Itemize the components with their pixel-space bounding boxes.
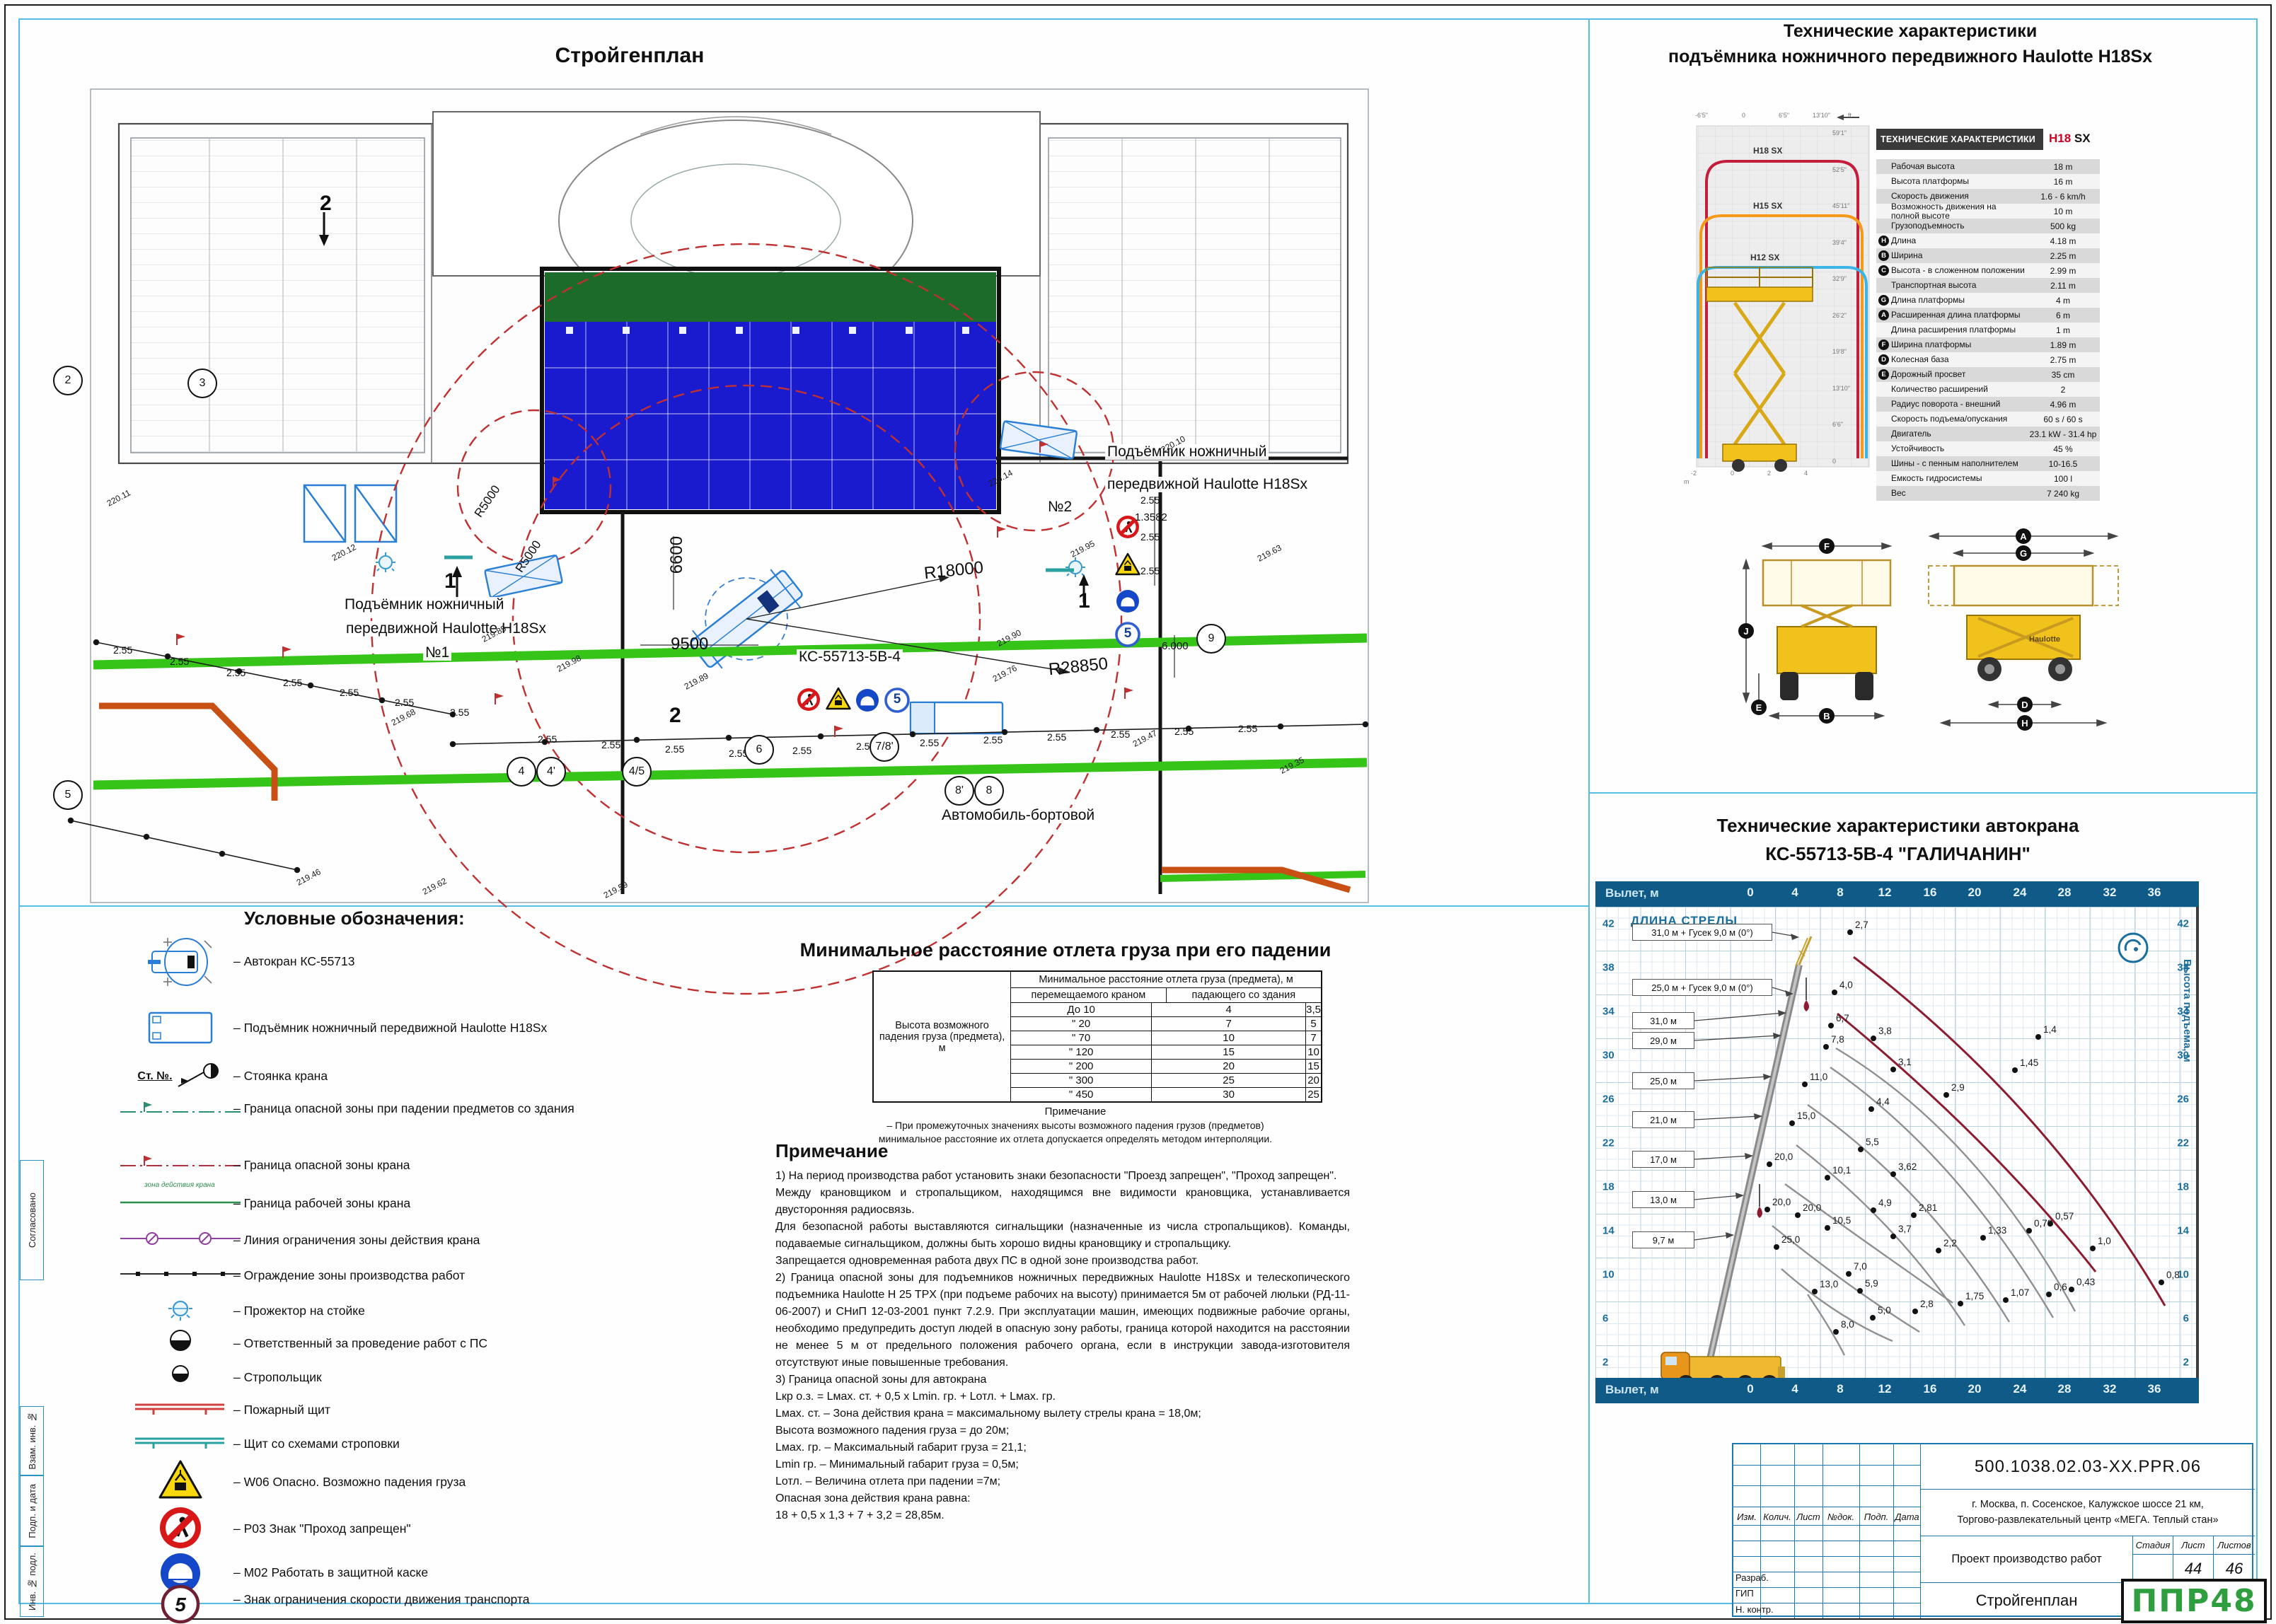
zone-limit-line-icon bbox=[120, 1229, 241, 1248]
x-tick: 12 bbox=[1878, 1382, 1892, 1396]
envelope-model-h15: H15 SX bbox=[1753, 201, 1782, 211]
y-tick-left: 18 bbox=[1602, 1181, 1614, 1193]
x-tick: 28 bbox=[2058, 1382, 2072, 1396]
spec-row: HДлина4.18 m bbox=[1876, 233, 2100, 248]
load-value: 1,0 bbox=[2098, 1236, 2111, 1246]
spec-row: Транспортная высота2.11 m bbox=[1876, 278, 2100, 293]
crane-parking-icon: Ст. №. bbox=[120, 1062, 241, 1091]
load-value: 2,8 bbox=[1920, 1299, 1934, 1309]
y-tick-right: 42 bbox=[2177, 918, 2189, 930]
h18sx-title-line1: Технические характеристики bbox=[1592, 21, 2229, 42]
chart-top-axis-bar: Вылет, м 04812162024283236 bbox=[1595, 881, 2199, 907]
load-value: 6,7 bbox=[1836, 1013, 1849, 1023]
title-block: Изм. Колич. Лист №док. Подп. Дата Разраб… bbox=[1732, 1443, 2253, 1617]
note-paragraph: 2) Граница опасной зоны для подъемников … bbox=[775, 1270, 1350, 1371]
load-value: 5,9 bbox=[1865, 1278, 1878, 1289]
rev-h-data: Дата bbox=[1893, 1508, 1921, 1525]
safety-signs bbox=[797, 516, 1140, 712]
load-value: 2,7 bbox=[1855, 920, 1868, 930]
dimension-diagrams bbox=[1743, 533, 2118, 726]
building-danger-boundary-icon bbox=[120, 1098, 241, 1119]
load-value: 25,0 bbox=[1781, 1234, 1800, 1245]
load-value: 3,1 bbox=[1898, 1057, 1912, 1067]
drawing-name: Стройгенплан bbox=[1921, 1583, 2133, 1618]
crane-work-boundary-icon: зона действия крана bbox=[120, 1191, 241, 1210]
sheets-header: Листов bbox=[2214, 1536, 2255, 1555]
object-address: г. Москва, п. Сосенское, Калужское шоссе… bbox=[1921, 1490, 2255, 1536]
boom-length-label: 21,0 м bbox=[1632, 1111, 1694, 1128]
spec-row: Высота платформы16 m bbox=[1876, 174, 2100, 189]
fire-shield-icon bbox=[120, 1399, 241, 1417]
spec-row: Количество расширений2 bbox=[1876, 382, 2100, 397]
note-paragraph: 3) Граница опасной зоны для автокрана bbox=[775, 1371, 1350, 1388]
load-value: 20,0 bbox=[1772, 1197, 1791, 1207]
work-zone-fence-icon bbox=[120, 1266, 241, 1282]
chart-graphics bbox=[1595, 881, 2199, 1403]
work-supervisor-icon bbox=[120, 1330, 241, 1351]
x-tick: 36 bbox=[2148, 886, 2161, 900]
drawing-sheet: Согласовано Взам. инв. № Подп. и дата Ин… bbox=[0, 0, 2276, 1624]
envelope-right-tick: 52'5" bbox=[1832, 166, 1847, 173]
svg-text:5: 5 bbox=[175, 1594, 186, 1616]
y-tick-left: 14 bbox=[1602, 1225, 1614, 1237]
doc-number: 500.1038.02.03-XX.PPR.06 bbox=[1921, 1444, 2255, 1490]
fall-table-row: До 1043,5 bbox=[1011, 1003, 1321, 1017]
spec-row: Скорость подъема/опускания60 s / 60 s bbox=[1876, 412, 2100, 427]
x-tick: 16 bbox=[1924, 1382, 1937, 1396]
crane-danger-boundary-icon bbox=[120, 1152, 241, 1173]
load-value: 4,9 bbox=[1878, 1197, 1892, 1208]
note-paragraph: Между крановщиком и стропальщиком, наход… bbox=[775, 1185, 1350, 1219]
envelope-right-tick: 45'11" bbox=[1832, 202, 1849, 209]
y-tick-left: 2 bbox=[1602, 1357, 1608, 1369]
fall-table-row: " 4503025 bbox=[1011, 1088, 1321, 1101]
floodlight-icon bbox=[120, 1296, 241, 1324]
load-value: 1,75 bbox=[1965, 1291, 1984, 1301]
note-paragraph: 1) На период производства работ установи… bbox=[775, 1168, 1350, 1185]
load-value: 5,5 bbox=[1866, 1137, 1879, 1147]
galichanin-logo-icon bbox=[2119, 934, 2147, 962]
y-tick-right: 22 bbox=[2177, 1137, 2189, 1149]
ppr48-logo: ППР48 bbox=[2133, 1583, 2255, 1618]
chart-bottom-axis-bar: Вылет, м 04812162024283236 bbox=[1595, 1378, 2199, 1403]
crane-load-chart: Вылет, м 04812162024283236 Вылет, м 0481… bbox=[1595, 881, 2199, 1403]
x-tick: 16 bbox=[1924, 886, 1937, 900]
load-value: 2,9 bbox=[1951, 1082, 1965, 1093]
y-tick-left: 26 bbox=[1602, 1094, 1614, 1106]
rev-h-kolich: Колич. bbox=[1760, 1508, 1794, 1525]
flatbed-truck-symbol bbox=[911, 702, 1003, 733]
boom-length-label: 31,0 м + Гусек 9,0 м (0°) bbox=[1632, 924, 1772, 941]
envelope-right-tick: 13'10" bbox=[1832, 385, 1850, 392]
y-tick-right: 18 bbox=[2177, 1181, 2189, 1193]
spec-row: Грузоподъемность500 kg bbox=[1876, 219, 2100, 233]
note-paragraph: 18 + 0,5 х 1,3 + 7 + 3,2 = 28,85м. bbox=[775, 1507, 1350, 1524]
project-name: Проект производство работ bbox=[1921, 1536, 2133, 1583]
fall-sub2: падающего со здания bbox=[1167, 988, 1321, 1002]
spec-row: DКолесная база2.75 m bbox=[1876, 352, 2100, 367]
dim-letter-A: A bbox=[2016, 528, 2031, 544]
height-axis-label: Высота подъема, м bbox=[2181, 959, 2193, 1062]
envelope-right-tick: 32'9" bbox=[1832, 275, 1847, 282]
y-tick-left: 42 bbox=[1602, 918, 1614, 930]
y-tick-right: 26 bbox=[2177, 1094, 2189, 1106]
speed-limit-sign-icon: 5 bbox=[120, 1584, 241, 1624]
x-tick: 24 bbox=[2014, 1382, 2027, 1396]
rev-h-izm: Изм. bbox=[1733, 1508, 1760, 1525]
crane-title-line2: КС-55713-5В-4 "ГАЛИЧАНИН" bbox=[1595, 843, 2200, 865]
spec-row: GДлина платформы4 m bbox=[1876, 293, 2100, 308]
load-value: 4,0 bbox=[1839, 980, 1853, 990]
load-value: 13,0 bbox=[1820, 1279, 1838, 1289]
load-value: 11,0 bbox=[1810, 1072, 1827, 1082]
spec-row: Емкость гидросистемы100 l bbox=[1876, 471, 2100, 486]
note-paragraph: Высота возможного падения груза = до 20м… bbox=[775, 1422, 1350, 1439]
y-tick-left: 38 bbox=[1602, 962, 1614, 974]
x-tick: 24 bbox=[2014, 886, 2027, 900]
dim-letter-J: J bbox=[1738, 623, 1754, 639]
roads bbox=[93, 638, 1367, 890]
crane-plan-icon bbox=[120, 935, 241, 989]
rev-h-list: Лист bbox=[1794, 1508, 1822, 1525]
spec-row: BШирина2.25 m bbox=[1876, 248, 2100, 263]
load-value: 0,43 bbox=[2076, 1277, 2095, 1287]
fall-span-header: Минимальное расстояние отлета груза (пре… bbox=[1011, 972, 1321, 988]
envelope-model-h18: H18 SX bbox=[1753, 146, 1782, 156]
fall-table-row: " 1201510 bbox=[1011, 1045, 1321, 1060]
x-tick: 36 bbox=[2148, 1382, 2161, 1396]
load-value: 1,07 bbox=[2011, 1287, 2029, 1298]
dim-letter-H: H bbox=[2017, 715, 2033, 731]
fall-table-row: " 2075 bbox=[1011, 1017, 1321, 1031]
y-tick-left: 34 bbox=[1602, 1006, 1614, 1018]
spec-row: AРасширенная длина платформы6 m bbox=[1876, 308, 2100, 323]
x-tick: 4 bbox=[1791, 1382, 1798, 1396]
load-value: 8,0 bbox=[1841, 1319, 1854, 1330]
spec-model-label: H18 SX bbox=[2049, 132, 2091, 146]
envelope-unit-ft: ft bbox=[1848, 112, 1852, 119]
spec-row: EДорожный просвет35 cm bbox=[1876, 367, 2100, 382]
boom-length-label: 29,0 м bbox=[1632, 1032, 1694, 1049]
fall-table-row: " 70107 bbox=[1011, 1031, 1321, 1045]
h18sx-title-line2: подъёмника ножничного передвижного Haulo… bbox=[1592, 47, 2229, 67]
load-value: 1,33 bbox=[1988, 1225, 2006, 1236]
spec-row: Возможность движения на полной высоте10 … bbox=[1876, 204, 2100, 219]
load-value: 3,62 bbox=[1898, 1161, 1917, 1172]
load-value: 10,1 bbox=[1832, 1165, 1851, 1176]
envelope-unit-m: m bbox=[1684, 478, 1689, 485]
load-value: 0,8 bbox=[2166, 1270, 2180, 1280]
spec-row: Рабочая высота18 m bbox=[1876, 159, 2100, 174]
x-tick: 20 bbox=[1968, 886, 1982, 900]
load-value: 3,8 bbox=[1878, 1026, 1892, 1036]
spec-row: Длина расширения платформы1 m bbox=[1876, 323, 2100, 337]
note-paragraph: Lкр о.з. = Lмах. ст. + 0,5 х Lmin. гр. +… bbox=[775, 1388, 1350, 1405]
load-value: 3,7 bbox=[1898, 1224, 1912, 1234]
envelope-tick: 13'10" bbox=[1813, 112, 1830, 119]
envelope-right-tick: 19'8" bbox=[1832, 348, 1847, 355]
x-tick: 12 bbox=[1878, 886, 1892, 900]
dim-letter-D: D bbox=[2017, 697, 2033, 712]
x-tick: 0 bbox=[1747, 1382, 1753, 1396]
note-paragraph: Lмах. гр. – Максимальный габарит груза =… bbox=[775, 1439, 1350, 1456]
fall-col1-header: Высота возможного падения груза (предмет… bbox=[874, 972, 1011, 1101]
spec-table-header: ТЕХНИЧЕСКИЕ ХАРАКТЕРИСТИКИ bbox=[1876, 129, 2043, 150]
note-paragraph: Lотл. – Величина отлета при падении =7м; bbox=[775, 1473, 1350, 1490]
note-paragraph: Опасная зона действия крана равна: bbox=[775, 1490, 1350, 1507]
envelope-tick: -6'5" bbox=[1695, 112, 1708, 119]
x-tick: 32 bbox=[2103, 886, 2117, 900]
note-paragraph: Lmin гр. – Минимальный габарит груза = 0… bbox=[775, 1456, 1350, 1473]
spec-row: Вес7 240 kg bbox=[1876, 486, 2100, 501]
haulotte-brand: Haulotte bbox=[2029, 635, 2060, 644]
load-value: 20,0 bbox=[1774, 1152, 1793, 1162]
x-tick: 8 bbox=[1837, 1382, 1843, 1396]
y-tick-right: 2 bbox=[2183, 1357, 2189, 1369]
note-paragraph: Запрещается одновременная работа двух ПС… bbox=[775, 1253, 1350, 1270]
y-tick-left: 6 bbox=[1602, 1313, 1608, 1325]
y-tick-right: 6 bbox=[2183, 1313, 2189, 1325]
x-tick: 20 bbox=[1968, 1382, 1982, 1396]
envelope-right-tick: 0 bbox=[1832, 458, 1836, 465]
legend-title: Условные обозначения: bbox=[244, 907, 465, 929]
boom-length-label: 25,0 м + Гусек 9,0 м (0°) bbox=[1632, 979, 1772, 996]
load-value: 7,0 bbox=[1854, 1261, 1867, 1272]
x-tick: 32 bbox=[2103, 1382, 2117, 1396]
gate-rects bbox=[304, 485, 396, 542]
load-value: 0,57 bbox=[2055, 1211, 2074, 1222]
y-tick-left: 30 bbox=[1602, 1050, 1614, 1062]
boom-length-label: 25,0 м bbox=[1632, 1072, 1694, 1089]
crane-title-line1: Технические характеристики автокрана bbox=[1595, 815, 2200, 837]
load-value: 10,5 bbox=[1832, 1215, 1851, 1226]
load-value: 2,2 bbox=[1943, 1238, 1957, 1248]
note-paragraph: Для безопасной работы выставляются сигна… bbox=[775, 1219, 1350, 1253]
load-value: 2,81 bbox=[1919, 1202, 1937, 1213]
spec-row: Радиус поворота - внешний4.96 m bbox=[1876, 397, 2100, 412]
load-value: 20,0 bbox=[1803, 1202, 1821, 1213]
spec-row: Двигатель23.1 kW - 31.4 hp bbox=[1876, 427, 2100, 441]
scissor-lift-icon bbox=[120, 1011, 241, 1044]
load-value: 15,0 bbox=[1797, 1110, 1815, 1121]
spec-row: Устойчивость45 % bbox=[1876, 441, 2100, 456]
x-tick: 0 bbox=[1747, 886, 1753, 900]
notes-title: Примечание bbox=[775, 1140, 1350, 1162]
load-value: 7,8 bbox=[1831, 1034, 1844, 1045]
legend-item: зона действия крана – Граница рабочей зо… bbox=[106, 1191, 601, 1210]
p03-sign-icon bbox=[120, 1505, 241, 1550]
load-value: 1,4 bbox=[2043, 1024, 2057, 1035]
fall-table-row: " 2002015 bbox=[1011, 1060, 1321, 1074]
x-tick: 8 bbox=[1837, 886, 1843, 900]
rev-h-dok: №док. bbox=[1822, 1508, 1859, 1525]
envelope-right-tick: 39'4" bbox=[1832, 239, 1847, 246]
y-tick-left: 22 bbox=[1602, 1137, 1614, 1149]
wall-lines bbox=[623, 458, 1348, 894]
envelope-right-tick: 59'1" bbox=[1832, 129, 1847, 137]
envelope-tick: 2 bbox=[1767, 470, 1771, 477]
envelope-tick: 0 bbox=[1731, 470, 1734, 477]
load-value: 0,6 bbox=[2054, 1282, 2067, 1292]
envelope-model-h12: H12 SX bbox=[1750, 253, 1779, 262]
role-gip: ГИП bbox=[1735, 1588, 1792, 1602]
fall-sub1: перемещаемого краном bbox=[1011, 988, 1166, 1002]
x-tick: 4 bbox=[1791, 886, 1798, 900]
spec-row: Шины - с пенным наполнителем10-16.5 bbox=[1876, 456, 2100, 471]
envelope-tick: 0 bbox=[1742, 112, 1745, 119]
dim-letter-G: G bbox=[2016, 545, 2031, 561]
boom-length-label: 31,0 м bbox=[1632, 1012, 1694, 1029]
fall-distance-table: Высота возможного падения груза (предмет… bbox=[872, 970, 1322, 1103]
envelope-right-tick: 26'2" bbox=[1832, 312, 1847, 319]
load-value: 1,45 bbox=[2020, 1057, 2038, 1068]
load-value: 4,4 bbox=[1876, 1096, 1890, 1107]
boom-length-label: 17,0 м bbox=[1632, 1151, 1694, 1168]
envelope-tick: 6'5" bbox=[1779, 112, 1789, 119]
envelope-tick: 4 bbox=[1804, 470, 1808, 477]
envelope-tick: -2 bbox=[1691, 470, 1697, 477]
envelope-right-tick: 6'6" bbox=[1832, 421, 1843, 428]
sling-schemes-shield-icon bbox=[120, 1433, 241, 1451]
sheet-header: Лист bbox=[2173, 1536, 2214, 1555]
spec-row: CВысота - в сложенном положении2.99 m bbox=[1876, 263, 2100, 278]
boom-length-label: 9,7 м bbox=[1632, 1231, 1694, 1248]
stage-header: Стадия bbox=[2133, 1536, 2173, 1555]
spec-row: FШирина платформы1.89 m bbox=[1876, 337, 2100, 352]
role-nkontr: Н. контр. bbox=[1735, 1604, 1792, 1618]
fall-table-row: " 3002520 bbox=[1011, 1074, 1321, 1088]
role-razrab: Разраб. bbox=[1735, 1572, 1792, 1587]
x-tick: 28 bbox=[2058, 886, 2072, 900]
dim-letter-E: E bbox=[1751, 700, 1767, 715]
dim-letter-F: F bbox=[1819, 538, 1835, 554]
load-value: 5,0 bbox=[1878, 1305, 1891, 1316]
dim-letter-B: B bbox=[1819, 708, 1835, 724]
note-paragraph: Lмах. ст. – Зона действия крана = максим… bbox=[775, 1405, 1350, 1422]
boom-length-label: 13,0 м bbox=[1632, 1191, 1694, 1208]
y-tick-left: 10 bbox=[1602, 1269, 1614, 1281]
notes-block: Примечание 1) На период производства раб… bbox=[775, 1140, 1350, 1524]
rev-h-podp: Подп. bbox=[1859, 1508, 1893, 1525]
slinger-icon bbox=[120, 1365, 241, 1382]
fall-table-title: Минимальное расстояние отлета груза при … bbox=[778, 939, 1353, 961]
y-tick-right: 14 bbox=[2177, 1225, 2189, 1237]
w06-sign-icon bbox=[120, 1458, 241, 1501]
